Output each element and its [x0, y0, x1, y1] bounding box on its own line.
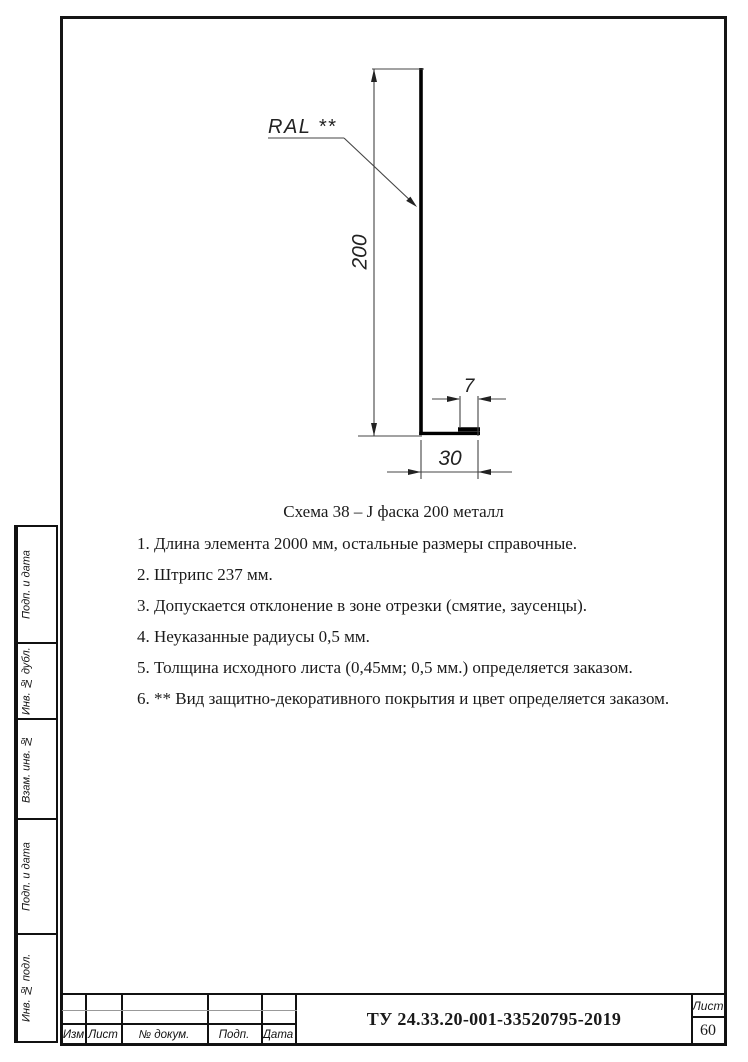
- notes-list: 1. Длина элемента 2000 мм, остальные раз…: [137, 528, 697, 714]
- note-3: 3. Допускается отклонение в зоне отрезки…: [137, 590, 697, 621]
- stamp-col-dokum: № докум.: [121, 1025, 207, 1044]
- document-number: ТУ 24.33.20-001-33520795-2019: [297, 995, 691, 1044]
- note-2: 2. Штрипс 237 мм.: [137, 559, 697, 590]
- sidebar-cell: Взам. инв. №: [16, 720, 56, 820]
- stamp-col-izm: Изм: [62, 1025, 85, 1044]
- sidebar-empty-field: [35, 820, 56, 933]
- sidebar-label-podp-data-1: Подп. и дата: [16, 527, 35, 642]
- sidebar-label-inv-podl: Инв. № подл.: [16, 935, 35, 1041]
- sidebar-empty-field: [35, 527, 56, 642]
- stamp-col-list: Лист: [85, 1025, 121, 1044]
- profile-drawing: 200 RAL ** 7 30: [250, 55, 530, 495]
- sidebar-cell: Инв. № дубл.: [16, 644, 56, 720]
- sidebar-empty-field: [35, 935, 56, 1041]
- title-block: Изм Лист № докум. Подп. Дата ТУ 24.33.20…: [60, 993, 727, 1046]
- sidebar-label-vzam-inv: Взам. инв. №: [16, 720, 35, 818]
- note-5: 5. Толщина исходного листа (0,45мм; 0,5 …: [137, 652, 697, 683]
- ral-leader: [268, 138, 417, 207]
- gost-sidebar: Подп. и дата Инв. № дубл. Взам. инв. № П…: [14, 525, 58, 1043]
- figure-caption: Схема 38 – J фаска 200 металл: [60, 502, 727, 522]
- sidebar-empty-field: [35, 644, 56, 718]
- dim-30-label: 30: [438, 447, 462, 470]
- sidebar-label-podp-data-2: Подп. и дата: [16, 820, 35, 933]
- drawing-sheet: 200 RAL ** 7 30 Схема 38 – J фаск: [0, 0, 748, 1062]
- sidebar-empty-field: [35, 720, 56, 818]
- sidebar-label-inv-dubl: Инв. № дубл.: [16, 644, 35, 718]
- dim-7-label: 7: [464, 376, 476, 397]
- note-6: 6. ** Вид защитно-декоративного покрытия…: [137, 683, 697, 714]
- ral-label: RAL **: [268, 116, 337, 138]
- stamp-thin-row-line: [62, 1010, 297, 1011]
- note-4: 4. Неуказанные радиусы 0,5 мм.: [137, 621, 697, 652]
- dim-200-label: 200: [349, 234, 372, 270]
- sidebar-cell: Инв. № подл.: [16, 935, 56, 1041]
- sidebar-cell: Подп. и дата: [16, 820, 56, 935]
- sidebar-cell: Подп. и дата: [16, 527, 56, 644]
- stamp-col-podp: Подп.: [207, 1025, 261, 1044]
- stamp-col-data: Дата: [261, 1025, 295, 1044]
- note-1: 1. Длина элемента 2000 мм, остальные раз…: [137, 528, 697, 559]
- sheet-number: 60: [691, 1018, 725, 1044]
- sheet-label: Лист: [691, 995, 725, 1016]
